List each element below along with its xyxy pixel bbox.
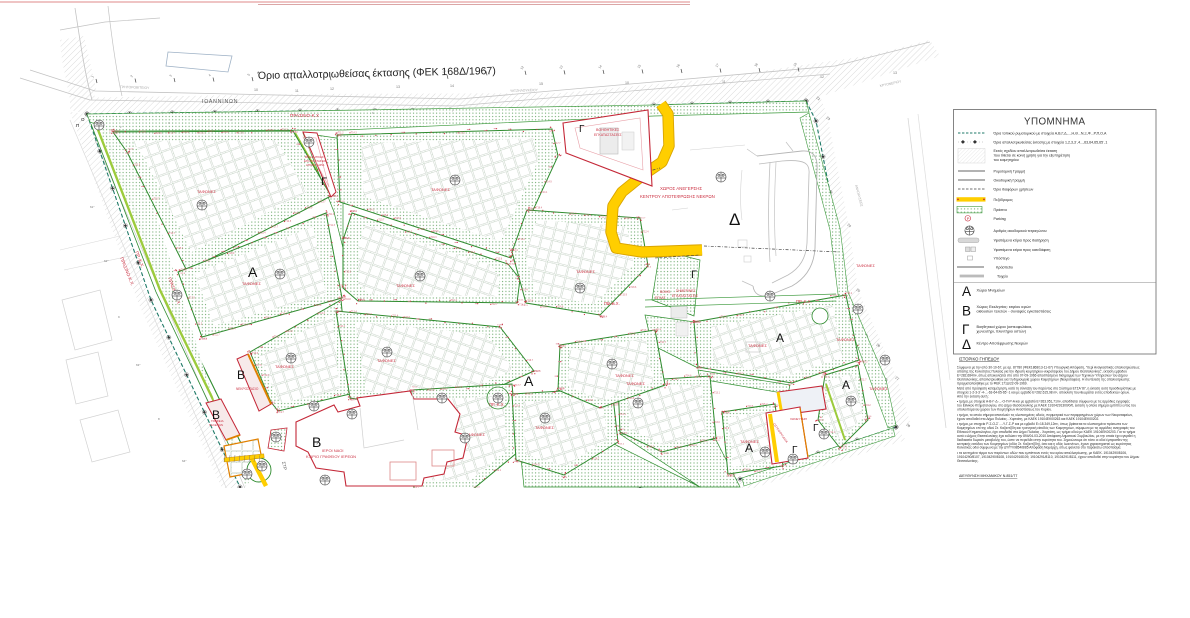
svg-text:T18.0: T18.0 xyxy=(648,447,655,449)
svg-text:T13.3: T13.3 xyxy=(862,361,869,363)
svg-text:ΙΕΡΟΙ ΝΑΟΙ: ΙΕΡΟΙ ΝΑΟΙ xyxy=(322,448,343,453)
svg-text:T12.5: T12.5 xyxy=(619,429,625,431)
svg-text:T10.1: T10.1 xyxy=(294,213,301,215)
svg-text:T11.2: T11.2 xyxy=(519,239,525,241)
svg-text:T16.6: T16.6 xyxy=(404,317,411,319)
svg-text:63°: 63° xyxy=(136,363,141,367)
svg-text:T11.4: T11.4 xyxy=(230,329,236,331)
svg-text:Γ: Γ xyxy=(321,176,327,188)
svg-text:T12.3: T12.3 xyxy=(319,313,326,315)
svg-text:T10.7: T10.7 xyxy=(378,220,385,222)
svg-text:T11.4: T11.4 xyxy=(664,384,670,386)
svg-text:T12.5: T12.5 xyxy=(535,371,542,373)
svg-text:T18.0: T18.0 xyxy=(228,253,235,255)
svg-text:T13.7: T13.7 xyxy=(154,199,161,201)
svg-text:T15.9: T15.9 xyxy=(621,295,628,297)
svg-text:Όρια απαλλοτριωθείσας έκτασης: Όρια απαλλοτριωθείσας έκτασης με στοιχεί… xyxy=(993,141,1108,145)
svg-text:Δ: Δ xyxy=(962,337,971,352)
svg-text:T16.7: T16.7 xyxy=(724,411,731,413)
svg-text:ΚΤΙΡΙΟ ΓΡΑΦΕΙΟΥ ΙΕΡΕΩΝ: ΚΤΙΡΙΟ ΓΡΑΦΕΙΟΥ ΙΕΡΕΩΝ xyxy=(306,454,356,459)
svg-text:T13.3: T13.3 xyxy=(339,201,345,203)
svg-text:Τοιχείο: Τοιχείο xyxy=(997,275,1008,279)
svg-text:T11.7: T11.7 xyxy=(209,131,215,133)
svg-text:ΑΠΟΔΥΤΗΡΙΑ: ΑΠΟΔΥΤΗΡΙΑ xyxy=(306,163,324,167)
svg-text:T19.2: T19.2 xyxy=(263,375,270,377)
svg-text:ΙΣΤΟΡΙΚΟ ΓΗΠΕΔΟΥ: ΙΣΤΟΡΙΚΟ ΓΗΠΕΔΟΥ xyxy=(959,357,1000,362)
svg-text:Κέντρο Αποτέφρωσης Νεκρών: Κέντρο Αποτέφρωσης Νεκρών xyxy=(977,342,1028,346)
svg-text:T17.0: T17.0 xyxy=(509,264,516,266)
svg-text:T13.3: T13.3 xyxy=(721,317,728,319)
svg-text:T13.1: T13.1 xyxy=(714,392,721,394)
svg-text:T10.0: T10.0 xyxy=(576,341,583,343)
svg-text:T14.9: T14.9 xyxy=(183,132,190,134)
svg-text:ΤΑΦΩΝΕΣ: ΤΑΦΩΝΕΣ xyxy=(275,364,294,369)
svg-text:T12.6: T12.6 xyxy=(242,324,249,326)
svg-text:Εκτός σχεδίου απαλλοτριωθείσα: Εκτός σχεδίου απαλλοτριωθείσα έκταση xyxy=(994,149,1058,153)
svg-text:Από την έκταση αυτή :: Από την έκταση αυτή : xyxy=(957,394,989,398)
svg-text:T14.4: T14.4 xyxy=(359,300,366,302)
svg-text:Βοηθητικοί χώροι (οστεοφυλάκια: Βοηθητικοί χώροι (οστεοφυλάκια, xyxy=(977,325,1033,329)
svg-text:T14.7: T14.7 xyxy=(169,233,176,235)
svg-text:T11.6: T11.6 xyxy=(329,214,335,216)
svg-text:ΒΟΗΘ.: ΒΟΗΘ. xyxy=(660,290,671,294)
svg-text:T12.4: T12.4 xyxy=(512,250,519,252)
svg-text:T10.5: T10.5 xyxy=(818,419,824,421)
svg-text:T19.4: T19.4 xyxy=(522,289,529,291)
svg-text:T10.2: T10.2 xyxy=(846,293,853,295)
svg-text:11: 11 xyxy=(722,80,726,84)
svg-text:T16.8: T16.8 xyxy=(345,299,352,301)
svg-text:T11.4: T11.4 xyxy=(392,316,398,318)
svg-text:T13.5: T13.5 xyxy=(621,433,628,435)
svg-text:ΤΑΦΩΝΕΣ: ΤΑΦΩΝΕΣ xyxy=(576,269,595,274)
svg-text:T18.7: T18.7 xyxy=(593,458,600,460)
svg-text:πραγματοποιήθηκε με το ΦΕΚ 171: πραγματοποιήθηκε με το ΦΕΚ 171Δ/22-09-19… xyxy=(957,381,1028,385)
svg-text:T16.7: T16.7 xyxy=(113,133,120,135)
svg-text:T10.6: T10.6 xyxy=(315,305,322,307)
svg-text:T18.8: T18.8 xyxy=(497,325,503,327)
svg-text:19104290/8107, 19104290/8108,: 19104290/8107, 19104290/8108, 19104291/8… xyxy=(957,455,1140,459)
svg-text:T17.4: T17.4 xyxy=(585,215,592,217)
svg-text:T13.1: T13.1 xyxy=(642,330,649,332)
svg-text:Β: Β xyxy=(237,368,245,382)
svg-text:T12.4: T12.4 xyxy=(514,406,521,408)
svg-text:T13.2: T13.2 xyxy=(469,252,476,254)
svg-text:T14.6: T14.6 xyxy=(266,317,273,319)
svg-text:T17.5: T17.5 xyxy=(456,387,463,389)
svg-text:T15.6: T15.6 xyxy=(419,229,426,231)
svg-text:T14.1: T14.1 xyxy=(829,432,836,434)
svg-text:T19.1: T19.1 xyxy=(205,260,212,262)
svg-text:T14.8: T14.8 xyxy=(128,149,134,151)
svg-text:T11.8: T11.8 xyxy=(140,131,146,133)
svg-text:12: 12 xyxy=(330,87,334,91)
svg-text:Γ: Γ xyxy=(691,269,697,281)
svg-text:ΕΓΚΑΤ.: ΕΓΚΑΤ. xyxy=(655,296,666,300)
svg-text:ΠΡ.-Κ.Χ.: ΠΡ.-Κ.Χ. xyxy=(604,301,620,306)
svg-text:T16.4: T16.4 xyxy=(382,215,389,217)
svg-text:T12.1: T12.1 xyxy=(528,210,535,212)
svg-text:Γ: Γ xyxy=(813,423,819,434)
svg-text:ΒΟΗΘΗΤΙΚΕΣ: ΒΟΗΘΗΤΙΚΕΣ xyxy=(596,128,620,132)
svg-text:T11.5: T11.5 xyxy=(527,394,533,396)
svg-text:Β: Β xyxy=(212,408,220,422)
svg-text:Υφιστάμενα κτίρια προς διατήρη: Υφιστάμενα κτίρια προς διατήρηση xyxy=(994,238,1049,242)
svg-text:T13.4: T13.4 xyxy=(824,377,830,379)
svg-text:T10.4: T10.4 xyxy=(587,400,594,402)
svg-text:T14.9: T14.9 xyxy=(534,465,541,467)
svg-text:ΧΩΝΕΥΤΗΡΙ: ΧΩΝΕΥΤΗΡΙ xyxy=(790,417,807,421)
svg-text:T16.6: T16.6 xyxy=(395,218,402,220)
svg-text:Α: Α xyxy=(842,378,850,392)
svg-text:ΤΑΦΩΝΕΣ: ΤΑΦΩΝΕΣ xyxy=(615,373,634,378)
svg-text:ΤΑΦΩΝΕΣ: ΤΑΦΩΝΕΣ xyxy=(836,337,855,342)
svg-text:T17.7: T17.7 xyxy=(272,227,279,229)
svg-text:T10.2: T10.2 xyxy=(281,314,288,316)
svg-text:T17.3: T17.3 xyxy=(522,305,528,307)
svg-text:T11.3: T11.3 xyxy=(366,314,372,316)
svg-text:T16.1: T16.1 xyxy=(351,211,358,213)
svg-text:ΚΕΝΤΡΟΥ ΑΠΟΤΕΦΡΩΣΗΣ ΝΕΚΡΩΝ: ΚΕΝΤΡΟΥ ΑΠΟΤΕΦΡΩΣΗΣ ΝΕΚΡΩΝ xyxy=(640,194,715,199)
svg-text:T15.4: T15.4 xyxy=(260,232,267,234)
svg-text:T10.6: T10.6 xyxy=(747,406,754,408)
svg-text:T16.5: T16.5 xyxy=(335,395,342,397)
svg-text:T17.1: T17.1 xyxy=(788,384,794,386)
svg-text:T11.9: T11.9 xyxy=(724,428,730,430)
svg-text:Α: Α xyxy=(962,284,971,299)
svg-text:T17.9: T17.9 xyxy=(516,462,522,464)
svg-text:T11.3: T11.3 xyxy=(406,232,412,234)
svg-text:T18.6: T18.6 xyxy=(630,287,637,289)
svg-text:T10.3: T10.3 xyxy=(451,300,458,302)
svg-text:T16.1: T16.1 xyxy=(714,440,720,442)
svg-text:T15.4: T15.4 xyxy=(805,377,812,379)
svg-text:Ο: Ο xyxy=(81,117,85,122)
svg-text:έχουν αποδοθεί στο Δήμο Πυλαία: έχουν αποδοθεί στο Δήμο Πυλαίας - Χορτιά… xyxy=(957,417,1099,421)
svg-text:Α: Α xyxy=(776,331,784,345)
svg-text:T15.2: T15.2 xyxy=(274,409,280,411)
svg-text:ΤΑΦΩΝΕΣ: ΤΑΦΩΝΕΣ xyxy=(242,281,261,286)
svg-text:T12.9: T12.9 xyxy=(179,273,185,275)
svg-text:που τίθεται σε κοινή χρήση για: που τίθεται σε κοινή χρήση για την εξυπη… xyxy=(994,154,1071,158)
svg-text:T18.4: T18.4 xyxy=(536,207,543,209)
svg-text:T10.9: T10.9 xyxy=(842,296,848,298)
svg-text:Υπόστεγο: Υπόστεγο xyxy=(994,256,1010,260)
svg-text:T14.5: T14.5 xyxy=(285,221,292,223)
svg-text:του κοιμητηρίου: του κοιμητηρίου xyxy=(994,158,1019,162)
svg-text:T18.7: T18.7 xyxy=(626,218,633,220)
svg-text:ΕΓΚΑΤΑΣΤΑΣΕΙΣ: ΕΓΚΑΤΑΣΤΑΣΕΙΣ xyxy=(672,294,698,298)
svg-text:15: 15 xyxy=(539,82,543,86)
svg-text:T16.5: T16.5 xyxy=(598,407,604,409)
svg-text:T18.4: T18.4 xyxy=(601,316,608,318)
svg-text:T19.7: T19.7 xyxy=(278,412,285,414)
svg-text:T15.6: T15.6 xyxy=(433,231,440,233)
svg-text:Α: Α xyxy=(745,441,753,455)
svg-text:T17.5: T17.5 xyxy=(256,365,263,367)
svg-text:Β: Β xyxy=(962,304,971,319)
svg-text:T16.7: T16.7 xyxy=(842,445,848,447)
svg-text:ΧΩΡΟΣ ΑΝΕΓΕΡΣΗΣ: ΧΩΡΟΣ ΑΝΕΓΕΡΣΗΣ xyxy=(660,186,702,191)
svg-text:T13.7: T13.7 xyxy=(320,202,327,204)
svg-text:11: 11 xyxy=(295,89,299,93)
svg-text:T18.2: T18.2 xyxy=(512,394,519,396)
svg-text:Υφιστάμενα κτίρια προς κατεδάφ: Υφιστάμενα κτίρια προς κατεδάφιση xyxy=(994,248,1051,252)
svg-text:T14.3: T14.3 xyxy=(351,132,358,134)
svg-text:υπολοιπόμενου χώρου των Κοιμητ: υπολοιπόμενου χώρου των Κοιμητηρίων Ανασ… xyxy=(957,408,1052,412)
svg-text:T11.7: T11.7 xyxy=(214,335,220,337)
svg-text:T15.2: T15.2 xyxy=(412,387,418,389)
svg-text:T19.7: T19.7 xyxy=(855,362,861,364)
svg-text:T14.9: T14.9 xyxy=(556,155,562,157)
svg-text:T15.2: T15.2 xyxy=(619,444,625,446)
svg-text:T13.8: T13.8 xyxy=(744,470,751,472)
svg-text:T10.2: T10.2 xyxy=(702,441,709,443)
svg-text:T13.4: T13.4 xyxy=(351,311,358,313)
svg-text:T12.2: T12.2 xyxy=(287,331,294,333)
svg-text:T17.7: T17.7 xyxy=(515,385,522,387)
svg-text:ΤΑΦΩΝΕΣ: ΤΑΦΩΝΕΣ xyxy=(626,381,645,386)
svg-text:T19.4: T19.4 xyxy=(676,447,683,449)
svg-text:62°: 62° xyxy=(104,259,109,263)
svg-text:Α: Α xyxy=(524,373,534,389)
svg-text:Π: Π xyxy=(76,123,79,128)
svg-text:T15.2: T15.2 xyxy=(762,404,769,406)
svg-text:T11.9: T11.9 xyxy=(571,214,577,216)
svg-text:T15.9: T15.9 xyxy=(156,133,163,135)
svg-text:ΤΑΦΩΝΕΣ: ΤΑΦΩΝΕΣ xyxy=(535,425,554,430)
svg-text:T19.3: T19.3 xyxy=(431,237,438,239)
svg-text:Οικοδομική Γραμμή: Οικοδομική Γραμμή xyxy=(994,179,1025,183)
svg-text:T11.4: T11.4 xyxy=(169,133,175,135)
svg-text:T16.4: T16.4 xyxy=(339,326,346,328)
svg-text:T11.2: T11.2 xyxy=(338,133,344,135)
svg-text:T17.6: T17.6 xyxy=(340,287,346,289)
svg-text:T16.1: T16.1 xyxy=(663,453,669,455)
svg-text:T12.8: T12.8 xyxy=(429,390,436,392)
svg-text:P: P xyxy=(967,216,970,221)
svg-text:ΤΑΦΩΝΕΣ: ΤΑΦΩΝΕΣ xyxy=(197,189,216,194)
svg-text:ΥΠΟΜΝΗΜΑ: ΥΠΟΜΝΗΜΑ xyxy=(1024,117,1086,128)
svg-text:T16.1: T16.1 xyxy=(333,196,340,198)
svg-text:T13.6: T13.6 xyxy=(223,132,230,134)
svg-text:T13.7: T13.7 xyxy=(640,218,646,220)
svg-text:T11.3: T11.3 xyxy=(329,225,335,227)
svg-text:T13.7: T13.7 xyxy=(717,437,724,439)
svg-text:T19.1: T19.1 xyxy=(495,470,502,472)
svg-text:T17.6: T17.6 xyxy=(238,132,245,134)
svg-text:T17.7: T17.7 xyxy=(756,471,763,473)
svg-text:Πράσινο: Πράσινο xyxy=(994,208,1008,212)
svg-text:T13.0: T13.0 xyxy=(646,266,652,268)
svg-text:T19.3: T19.3 xyxy=(738,373,745,375)
svg-text:T17.1: T17.1 xyxy=(841,448,848,450)
svg-text:14: 14 xyxy=(450,84,454,88)
svg-text:T18.8: T18.8 xyxy=(181,270,188,272)
svg-text:Δ: Δ xyxy=(729,210,740,229)
svg-text:Θεσσαλονίκης.: Θεσσαλονίκης. xyxy=(957,459,979,463)
svg-text:Κράσπεδο: Κράσπεδο xyxy=(996,265,1013,269)
svg-text:T16.0: T16.0 xyxy=(714,422,721,424)
svg-text:Όρια τοπικού ρυμοτομικού με στ: Όρια τοπικού ρυμοτομικού με στοιχεία Α,Β… xyxy=(993,132,1107,136)
svg-text:T10.3: T10.3 xyxy=(558,388,565,390)
svg-text:12: 12 xyxy=(820,75,824,79)
svg-text:T11.8: T11.8 xyxy=(322,215,328,217)
svg-text:Κοινοτικές οδοί σύμφωνα με την: Κοινοτικές οδοί σύμφωνα με την ΔΥ/ΤΥ/985… xyxy=(957,446,1121,450)
svg-text:T12.4: T12.4 xyxy=(643,232,650,234)
svg-text:T13.9: T13.9 xyxy=(542,307,549,309)
svg-text:T17.8: T17.8 xyxy=(189,298,196,300)
svg-text:T13.7: T13.7 xyxy=(350,399,357,401)
svg-text:ΔΙΕΥΘΥΝΣΗ ΜΗΧΑΝΙΚΟΥ Ν.851/77: ΔΙΕΥΘΥΝΣΗ ΜΗΧΑΝΙΚΟΥ Ν.851/77 xyxy=(959,474,1017,478)
svg-text:13: 13 xyxy=(893,71,897,75)
svg-text:T12.4: T12.4 xyxy=(691,445,698,447)
svg-text:T14.9: T14.9 xyxy=(546,182,553,184)
svg-text:ΤΑΦΩΝΕΣ: ΤΑΦΩΝΕΣ xyxy=(748,343,767,348)
svg-text:΄: ΄ xyxy=(316,444,318,451)
svg-text:ΣΗΜΕΡΙΝΕΣ: ΣΗΜΕΡΙΝΕΣ xyxy=(676,289,696,293)
svg-text:Χώρος Εκκλησίας: κτιρίου ιερών: Χώρος Εκκλησίας: κτιρίου ιερών xyxy=(977,305,1031,309)
svg-text:T11.7: T11.7 xyxy=(861,379,867,381)
svg-text:T15.2: T15.2 xyxy=(729,476,736,478)
svg-text:T19.3: T19.3 xyxy=(560,346,567,348)
svg-text:T19.2: T19.2 xyxy=(832,295,839,297)
svg-text:T10.9: T10.9 xyxy=(306,208,313,210)
svg-text:T14.6: T14.6 xyxy=(710,373,716,375)
svg-text:T10.2: T10.2 xyxy=(549,131,555,133)
svg-text:ΠΡ.-Κ.Χ.: ΠΡ.-Κ.Χ. xyxy=(796,299,812,304)
svg-text:ΕΓΚΑΤΑΣΤΑΣΕΙΣ: ΕΓΚΑΤΑΣΤΑΣΕΙΣ xyxy=(594,133,622,137)
svg-text:T15.7: T15.7 xyxy=(442,389,449,391)
svg-text:ΤΕΛΕΤΩΝ: ΤΕΛΕΤΩΝ xyxy=(209,423,223,427)
svg-text:T10.0: T10.0 xyxy=(562,477,568,479)
svg-text:T16.7: T16.7 xyxy=(527,360,534,362)
svg-text:T14.9: T14.9 xyxy=(201,339,208,341)
svg-text:T13.3: T13.3 xyxy=(282,129,289,131)
svg-text:ΤΑΦΩΝΕΣ: ΤΑΦΩΝΕΣ xyxy=(396,283,415,288)
svg-text:T12.7: T12.7 xyxy=(492,304,499,306)
svg-text:Αριθμός οικοδομικού τετραγώνου: Αριθμός οικοδομικού τετραγώνου xyxy=(994,229,1047,233)
svg-text:T13.1: T13.1 xyxy=(600,216,607,218)
svg-text:T10.9: T10.9 xyxy=(613,405,620,407)
svg-text:T14.0: T14.0 xyxy=(292,132,299,134)
svg-text:T19.3: T19.3 xyxy=(459,133,466,135)
svg-text:T15.7: T15.7 xyxy=(340,297,346,299)
svg-text:ΝΕΚΡΟΣΤΑΣΙΟ: ΝΕΚΡΟΣΤΑΣΙΟ xyxy=(236,387,259,391)
svg-text:10: 10 xyxy=(625,81,629,85)
svg-text:T16.6: T16.6 xyxy=(557,306,564,308)
svg-text:Α: Α xyxy=(248,264,258,280)
svg-text:T13.8: T13.8 xyxy=(496,259,503,261)
svg-text:Χώροι Μνημείων: Χώροι Μνημείων xyxy=(977,289,1006,293)
svg-text:T18.7: T18.7 xyxy=(274,337,281,339)
svg-text:T16.5: T16.5 xyxy=(199,132,206,134)
svg-text:ΤΑΦΩΝΕΣ: ΤΑΦΩΝΕΣ xyxy=(431,187,450,192)
svg-text:IΩΑΝΝΙΝΩΝ: IΩΑΝΝΙΝΩΝ xyxy=(202,99,238,105)
svg-text:T15.6: T15.6 xyxy=(268,130,275,132)
svg-text:T19.4: T19.4 xyxy=(455,248,462,250)
svg-text:T11.5: T11.5 xyxy=(330,301,336,303)
svg-text:Ρυμοτομική Γραμμή: Ρυμοτομική Γραμμή xyxy=(994,170,1026,174)
svg-text:T14.1: T14.1 xyxy=(541,192,548,194)
svg-text:T18.7: T18.7 xyxy=(177,248,184,250)
svg-text:Γ: Γ xyxy=(792,445,798,456)
svg-text:T11.6: T11.6 xyxy=(344,238,350,240)
svg-text:64°: 64° xyxy=(182,459,187,463)
svg-text:T11.6: T11.6 xyxy=(134,165,140,167)
svg-text:T13.1: T13.1 xyxy=(518,299,524,301)
svg-text:T16.5: T16.5 xyxy=(738,315,745,317)
svg-text:T12.6: T12.6 xyxy=(656,329,662,331)
svg-text:Γ: Γ xyxy=(579,124,585,135)
svg-text:10: 10 xyxy=(254,88,258,92)
svg-text:T10.6: T10.6 xyxy=(252,353,259,355)
svg-text:ΤΑΦΩΝΕΣ: ΤΑΦΩΝΕΣ xyxy=(856,263,875,268)
svg-text:αιθουσών τελετών - συναφείς εγ: αιθουσών τελετών - συναφείς εγκαταστάσει… xyxy=(977,310,1052,314)
svg-text:T18.6: T18.6 xyxy=(866,416,872,418)
svg-text:T19.7: T19.7 xyxy=(673,379,680,381)
svg-text:Πεζόδρομος: Πεζόδρομος xyxy=(994,198,1014,202)
svg-text:T15.7: T15.7 xyxy=(698,368,705,370)
svg-text:Γ: Γ xyxy=(962,322,970,337)
svg-text:T15.3: T15.3 xyxy=(345,271,352,273)
svg-text:61°: 61° xyxy=(90,205,95,209)
svg-text:T13.3: T13.3 xyxy=(695,322,702,324)
svg-text:ΤΑΦΩΝΕΣ: ΤΑΦΩΝΕΣ xyxy=(377,358,396,363)
svg-text:T13.1: T13.1 xyxy=(620,414,627,416)
svg-text:Όριο διαφόρων χρήσεων: Όριο διαφόρων χρήσεων xyxy=(993,188,1034,192)
svg-text:T19.2: T19.2 xyxy=(865,405,872,407)
svg-text:T19.5: T19.5 xyxy=(629,333,636,335)
svg-text:T11.2: T11.2 xyxy=(197,324,203,326)
svg-text:13: 13 xyxy=(396,85,400,89)
svg-text:T17.7: T17.7 xyxy=(555,143,562,145)
svg-text:T15.4: T15.4 xyxy=(527,301,534,303)
svg-text:ΤΑΦΩΝΕΣ: ΤΑΦΩΝΕΣ xyxy=(869,386,888,391)
svg-text:T14.2: T14.2 xyxy=(369,209,376,211)
svg-text:T13.2: T13.2 xyxy=(696,376,703,378)
svg-text:Parking: Parking xyxy=(994,217,1006,221)
svg-text:χωνευτήρι, πλυντήριο οστών): χωνευτήρι, πλυντήριο οστών) xyxy=(977,330,1027,334)
svg-text:T14.6: T14.6 xyxy=(686,376,693,378)
svg-text:T16.7: T16.7 xyxy=(660,342,667,344)
